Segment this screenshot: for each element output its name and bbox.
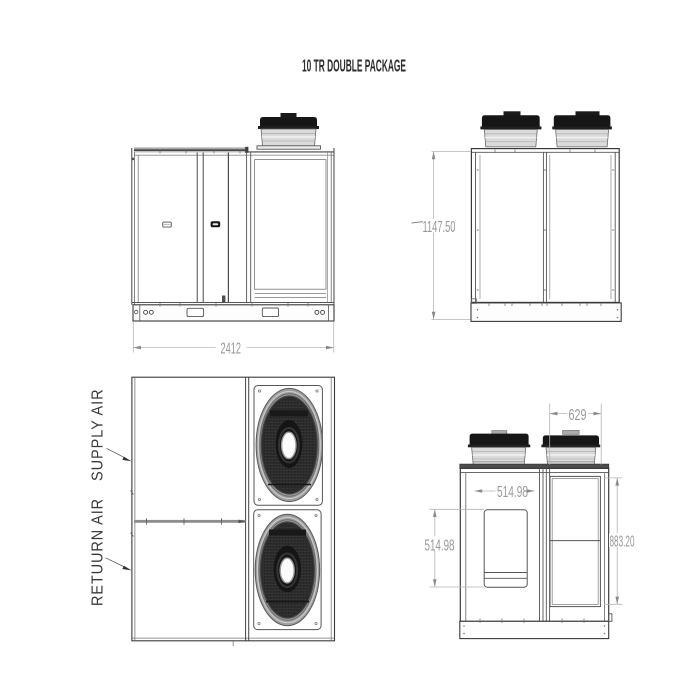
svg-text:2412: 2412 <box>221 341 242 358</box>
svg-text:1147.50: 1147.50 <box>423 219 456 236</box>
svg-text:883.20: 883.20 <box>610 534 635 551</box>
svg-text:SUPPLY AIR: SUPPLY AIR <box>89 389 106 482</box>
svg-text:514.98: 514.98 <box>497 484 528 501</box>
svg-text:RETUURN AIR: RETUURN AIR <box>89 498 106 606</box>
svg-text:629: 629 <box>569 407 587 424</box>
svg-text:514.98: 514.98 <box>425 538 455 555</box>
svg-text:10 TR DOUBLE PACKAGE: 10 TR DOUBLE PACKAGE <box>302 56 406 76</box>
